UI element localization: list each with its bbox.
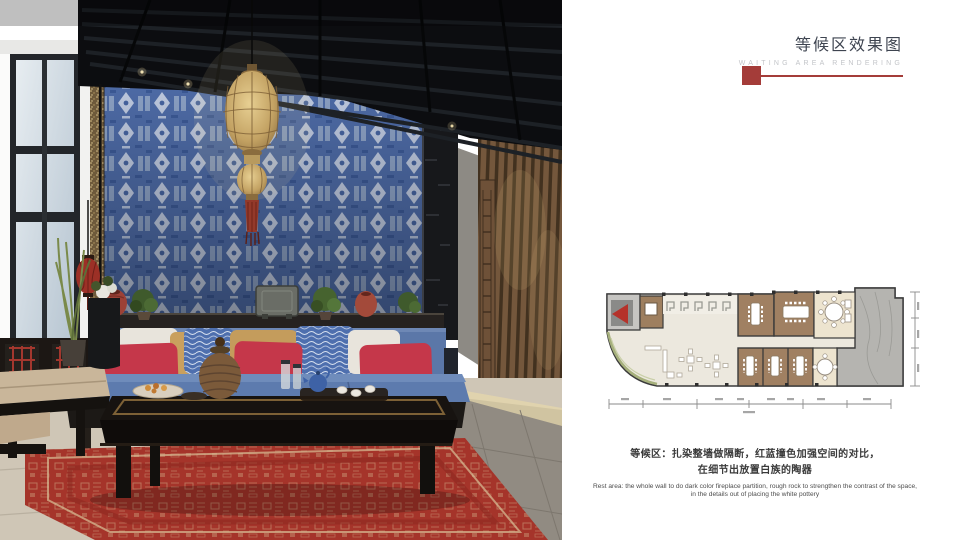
interior-scene [0,0,562,540]
caption-cn-line2: 在细节出放置白族的陶器 [545,461,960,476]
plan-lounge-top [814,292,855,338]
presentation-slide: 等候区效果图 WAITING AREA RENDERING [0,0,960,540]
floor-plan-drawing [605,286,925,420]
plan-private-rooms-bottom [738,348,813,386]
page-title: 等候区效果图 [795,31,903,55]
vignette [0,0,562,26]
concrete-wall [458,148,480,366]
caption-cn-line1: 等候区：扎染整墙做隔断，红蓝撞色加强空间的对比， [545,445,960,460]
plan-dimension-line-right [910,292,920,386]
page-subtitle: WAITING AREA RENDERING [739,60,903,67]
accent-divider-line [761,75,903,77]
carved-wood-panel [480,180,495,388]
plan-lounge-bottom [813,348,837,386]
plan-dimension-line [609,398,891,413]
waiting-area-photo [0,0,562,540]
red-clay-jar [355,291,377,317]
accent-square-icon [742,66,761,85]
floor-plan [605,286,925,420]
caption-en-line2: in the details out of placing the white … [545,491,960,498]
plan-private-rooms-top [738,292,814,336]
caption-en-line1: Rest area: the whole wall to do dark col… [545,483,960,490]
bronze-tray [256,286,298,319]
